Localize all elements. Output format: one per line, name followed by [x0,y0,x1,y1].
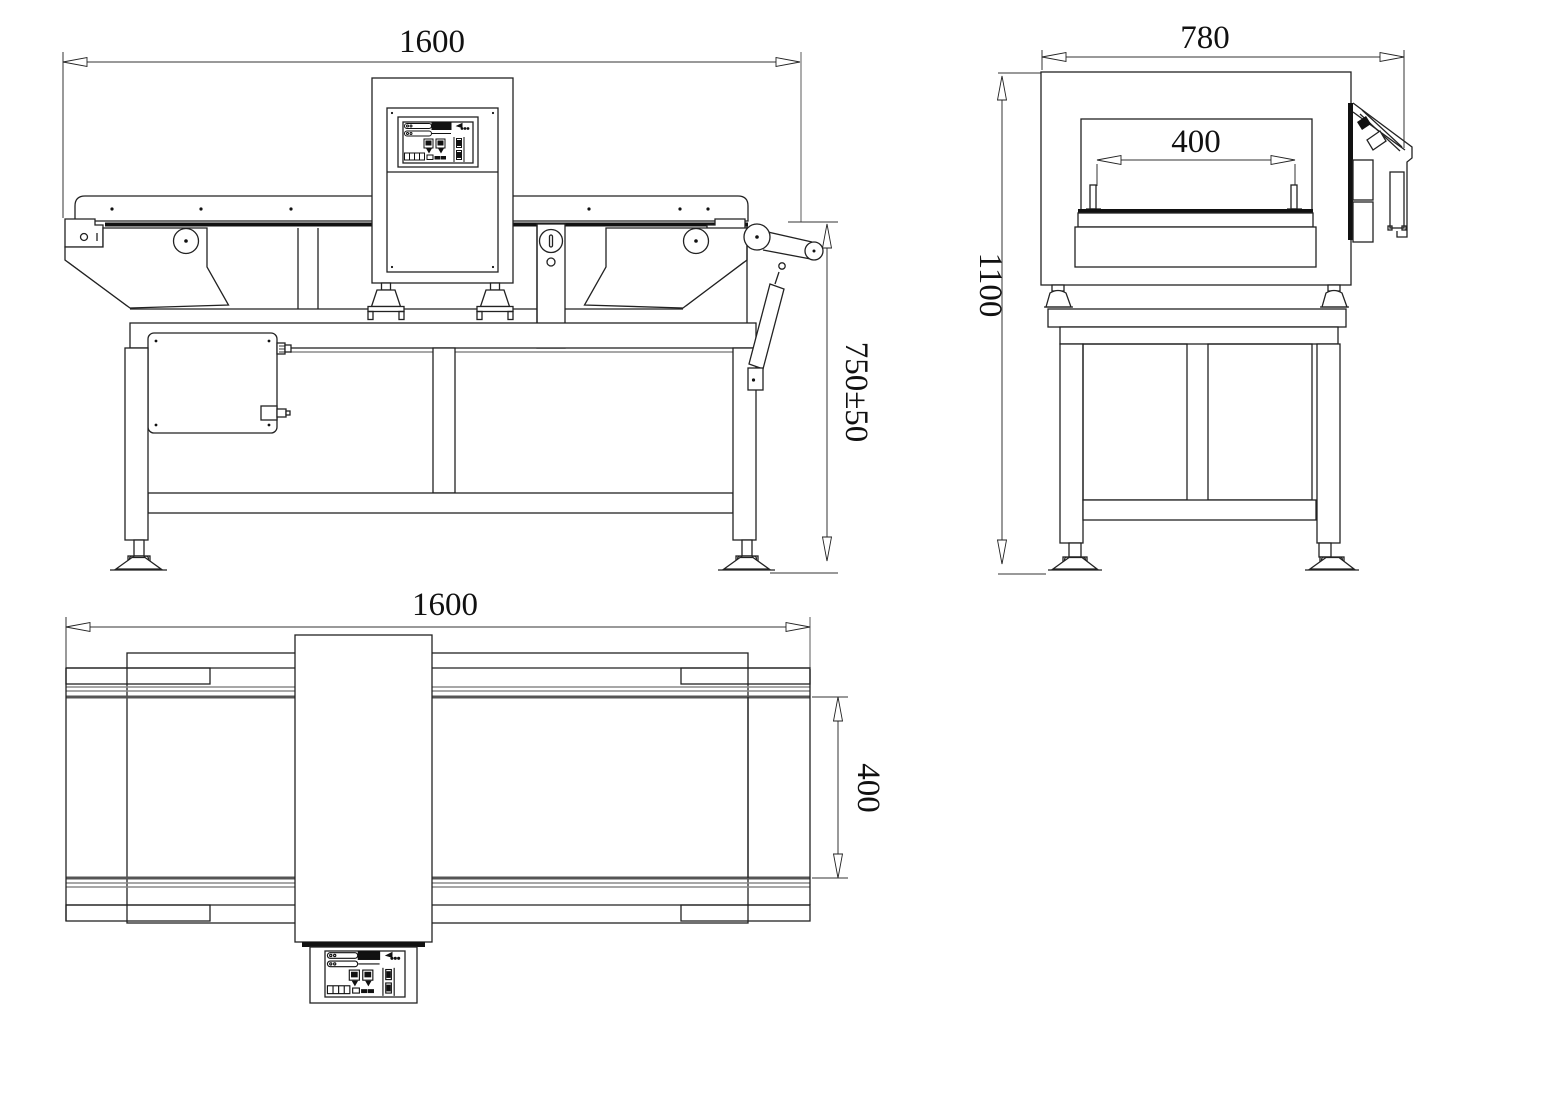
side-table-frame [1048,309,1359,570]
cabinet-door [148,333,291,433]
drawing-sheet: 1600 [0,0,1547,1094]
aperture-width-label: 400 [1171,124,1221,160]
left-takeup-bracket [65,219,103,247]
side-height-dimension: 1100 [972,73,1046,574]
chute-deflector [1357,116,1371,130]
top-view: 1600 [66,587,886,1003]
cross-brace [148,493,733,513]
cylinder-mount-bracket [748,368,763,390]
reject-chute [1348,103,1412,242]
guide-block-top-right [681,668,810,684]
plan-head-base-strip [302,942,425,947]
side-width-label: 780 [1180,20,1230,56]
cylinder-clevis [779,263,785,269]
right-leg [718,348,775,570]
belt-frame-upper [1078,213,1313,227]
reject-arm-assembly [744,224,823,390]
head-foot-left [368,283,404,320]
side-right-leg [1317,344,1340,543]
plan-belt-width-dimension: 400 [812,697,886,878]
right-side-plate [585,228,748,308]
side-height-label: 1100 [972,253,1008,318]
side-door-right [1208,344,1312,500]
front-height-dimension: 750±50 [770,222,874,573]
belt-frame-lower [1075,227,1316,267]
front-width-label: 1600 [399,24,465,60]
plan-length-label: 1600 [412,587,478,623]
plan-belt-width-label: 400 [850,763,886,813]
sensor-eye [547,258,555,266]
side-view: 780 1100 400 [972,20,1412,574]
detector-head-feet [368,283,513,320]
head-foot-right [477,283,513,320]
door-latch [261,406,290,420]
plan-length-dimension: 1600 [66,587,810,668]
side-door-left [1083,344,1187,500]
side-cross-brace [1083,500,1316,520]
side-feet [1048,557,1359,570]
plan-detector-head [295,635,432,1003]
guide-block-top-left [66,668,210,684]
front-height-label: 750±50 [838,342,874,443]
guide-block-bottom-right [681,905,810,921]
cable-gland [277,343,291,354]
chute-bracket [1390,172,1404,228]
front-view: 1600 [63,24,874,573]
detector-head [372,78,513,283]
side-left-leg [1060,344,1083,543]
guide-block-bottom-left [66,905,210,921]
plan-rails [66,668,810,921]
center-post [433,348,455,493]
housing-mount-feet [1044,285,1349,307]
technical-drawing: 1600 [0,0,1547,1094]
